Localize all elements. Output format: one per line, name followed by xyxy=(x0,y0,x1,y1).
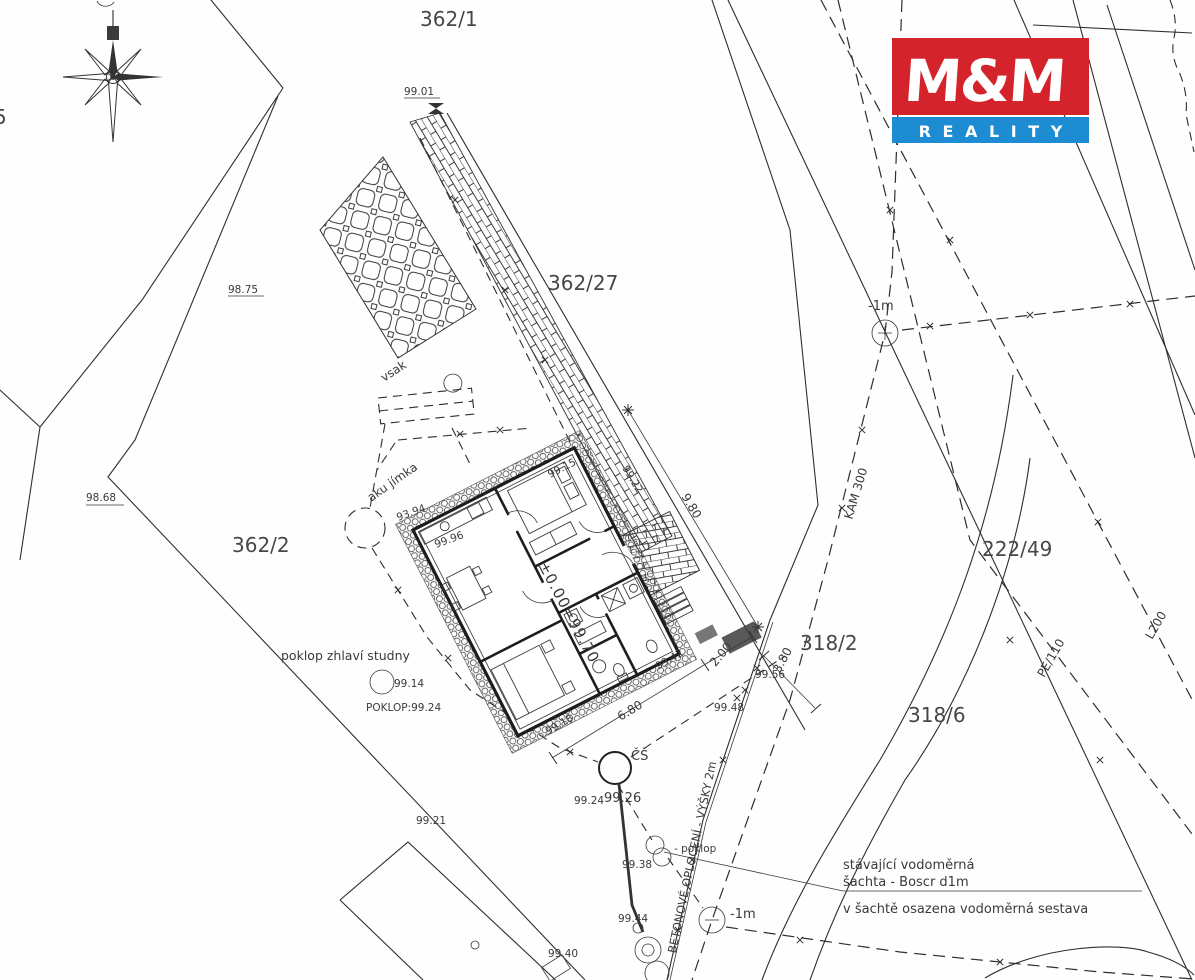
logo-reality-text: R E A L I T Y xyxy=(919,122,1066,141)
road-line xyxy=(1073,0,1195,458)
elevation-99-01: 99.01 xyxy=(404,86,434,98)
compass-rose xyxy=(63,1,163,142)
borehole-outer xyxy=(635,937,661,963)
elevation-99-38: 99.38 xyxy=(622,859,652,871)
parcel-label-222-49: 222/49 xyxy=(982,537,1052,561)
elevation-99-44: 99.44 xyxy=(618,913,648,925)
well-pipe xyxy=(619,784,643,932)
dim-label-680: 6.80 xyxy=(615,698,645,724)
elevation-99-40: 99.40 xyxy=(548,948,578,960)
parcel-label-362-27: 362/27 xyxy=(548,271,618,295)
elevation-99-24: 99.24 xyxy=(574,795,604,807)
realty-logo: M&M R E A L I T Y xyxy=(892,38,1089,143)
survey-point xyxy=(471,941,479,949)
parcel-label-362-2: 362/2 xyxy=(232,533,290,557)
entry-landing-dark xyxy=(695,624,718,644)
elevation-98-75: 98.75 xyxy=(228,284,258,296)
borehole-inner xyxy=(642,944,654,956)
utility-lines xyxy=(675,0,1195,980)
parcel-label-318-6: 318/6 xyxy=(908,703,966,727)
boundary-line xyxy=(20,88,283,560)
aku-jimka-tank xyxy=(345,508,385,548)
elevation-99-14: 99.14 xyxy=(394,678,424,690)
road-edge-east xyxy=(728,0,1192,980)
hedge-wavy-line xyxy=(1170,0,1194,152)
minus1m-top-cross xyxy=(878,326,892,340)
site-plan-page: 362/1 362/27 362/2 318/2 318/6 222/49 5 … xyxy=(0,0,1195,980)
dim-label-980: 9.80 xyxy=(679,491,705,521)
well-cover-label: POKLOP:99.24 xyxy=(366,702,441,714)
dim-label-380: 3.80 xyxy=(770,645,795,675)
parcel-label-362-1: 362/1 xyxy=(420,7,478,31)
shaft-note-line1: stávající vodoměrná xyxy=(843,858,974,873)
cs-shaft-circle xyxy=(599,752,631,784)
elevation-98-68: 98.68 xyxy=(86,492,116,504)
boundary-line xyxy=(211,0,283,88)
elevation-99-48: 99.48 xyxy=(714,702,744,714)
elevation-99-26: 99.26 xyxy=(604,791,641,806)
site-plan-drawing: 362/1 362/27 362/2 318/2 318/6 222/49 5 … xyxy=(0,0,1195,980)
minus1m-top-label: -1m xyxy=(868,299,894,314)
vsak-label: vsak xyxy=(378,358,409,385)
bottom-utility-line xyxy=(726,927,1194,979)
shaft-note-line3: v šachtě osazena vodoměrná sestava xyxy=(843,902,1088,917)
logo-mm-text: M&M xyxy=(902,47,1067,115)
cs-shaft-label: ČŠ xyxy=(631,748,648,764)
bottom-right-curve xyxy=(985,947,1194,978)
shaft-note-line2: šachta - Boscr d1m xyxy=(843,875,969,890)
boundary-line xyxy=(0,390,40,427)
curtilage-segment xyxy=(398,428,532,440)
aku-jimka-label: aku jímka xyxy=(365,460,420,505)
top-boundary-line xyxy=(1033,25,1192,33)
dim-line-380 xyxy=(763,655,815,708)
kam300-label: KAM 300 xyxy=(841,466,870,521)
building-outline-bottom-left xyxy=(340,842,563,980)
edge-digit-label: 5 xyxy=(0,105,7,129)
well-head xyxy=(370,670,394,694)
minus1m-bottom-label: -1m xyxy=(730,907,756,922)
fence-label: BETONOVÉ OPLOCENÍ - VÝŠKY 2m xyxy=(664,760,719,955)
road-line xyxy=(1107,5,1195,270)
parcel-label-318-2: 318/2 xyxy=(800,631,858,655)
elevation-99-21: 99.21 xyxy=(416,815,446,827)
borehole-outer2 xyxy=(645,961,669,980)
well-caption-label: poklop zhlaví studny xyxy=(281,648,411,663)
gate-symbol xyxy=(428,103,444,114)
